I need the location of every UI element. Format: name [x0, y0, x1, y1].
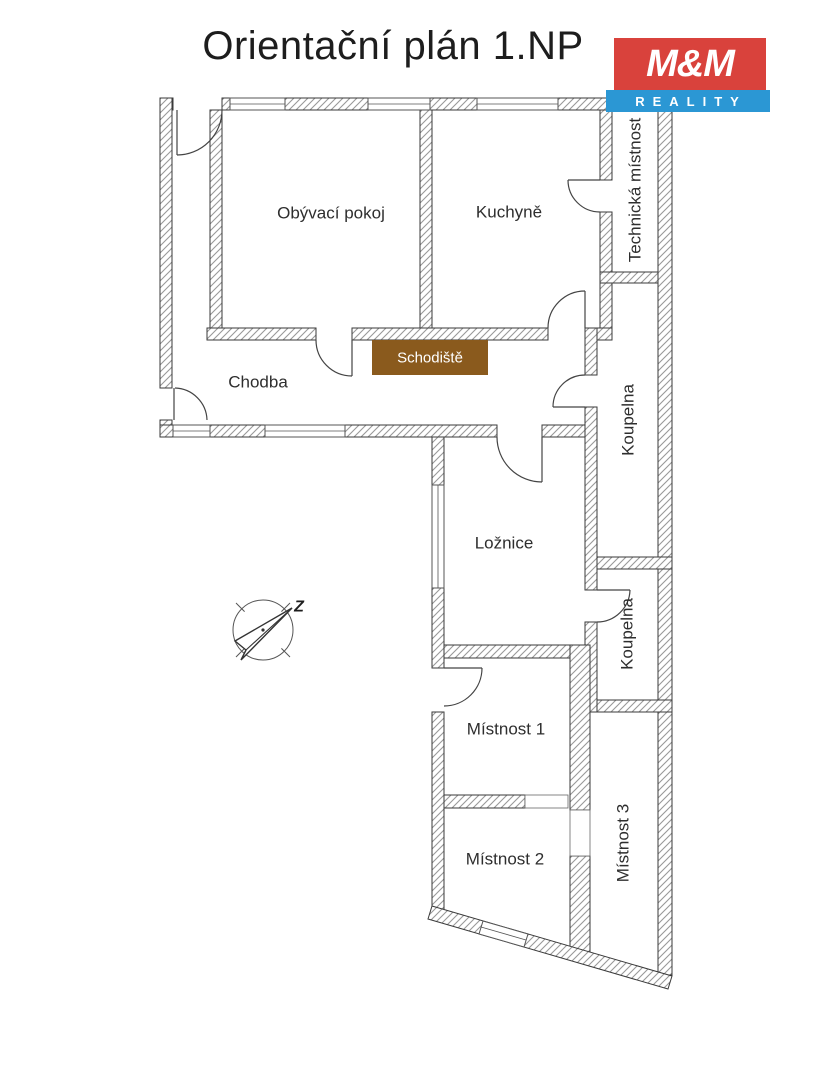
label-living-room: Obývací pokoj — [277, 204, 385, 223]
mm-reality-logo: M&M — [614, 38, 766, 90]
door-bedroom — [497, 437, 542, 482]
label-bathroom-1: Koupelna — [619, 384, 638, 456]
label-kitchen: Kuchyně — [476, 203, 542, 222]
window-mid-lines — [173, 104, 558, 940]
logo-mm-text: M&M — [646, 43, 734, 86]
compass: Z — [233, 599, 305, 661]
floor-plan-page: { "header": { "title": "Orientační plán … — [0, 0, 833, 1080]
door-entrance-left — [174, 388, 207, 420]
staircase-box: Schodiště — [372, 340, 488, 375]
label-hallway: Chodba — [228, 373, 288, 392]
compass-north-letter: Z — [293, 599, 305, 616]
doors — [174, 110, 630, 706]
label-room-3: Místnost 3 — [614, 804, 633, 882]
door-kitchen-bottom — [548, 291, 585, 328]
floor-plan: Schodiště Obývací pokoj Kuchyně Chodba L… — [0, 0, 833, 1080]
label-room-1: Místnost 1 — [467, 720, 545, 739]
label-bedroom: Ložnice — [475, 534, 534, 553]
door-technical-room — [568, 180, 600, 212]
windows — [173, 98, 558, 947]
door-room-1 — [444, 668, 482, 706]
label-technical-room: Technická místnost — [626, 117, 645, 262]
staircase-label: Schodiště — [397, 350, 463, 367]
label-bathroom-2: Koupelna — [618, 598, 637, 670]
mm-reality-logo-bar: REALITY — [606, 90, 770, 112]
label-room-2: Místnost 2 — [466, 850, 544, 869]
walls — [160, 98, 672, 989]
door-living-room — [316, 340, 352, 376]
logo-reality-text: REALITY — [635, 94, 747, 109]
door-bathroom-1 — [553, 375, 585, 407]
